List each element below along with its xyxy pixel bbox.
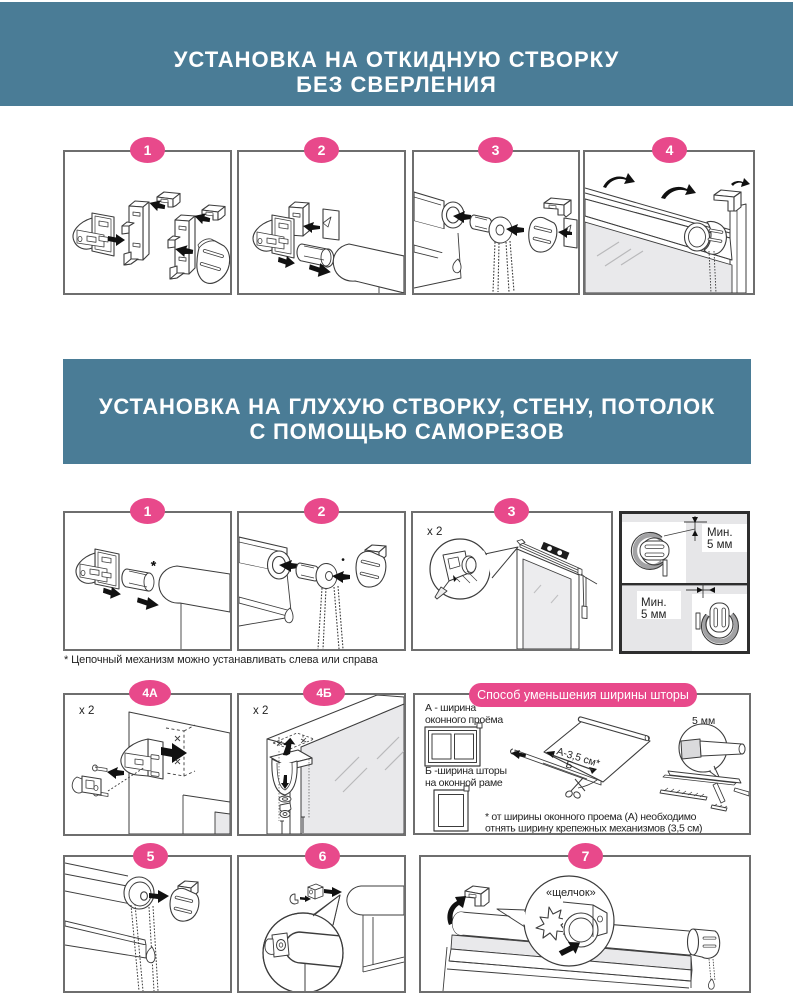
svg-text:Б -ширина шторы: Б -ширина шторы [425, 765, 507, 777]
svg-text:оконного проёма: оконного проёма [425, 714, 503, 726]
svg-text:отнять ширину крепежных механи: отнять ширину крепежных механизмов (3,5 … [485, 823, 702, 834]
svg-text:x 2: x 2 [79, 705, 94, 717]
svg-text:x 2: x 2 [253, 705, 268, 717]
svg-text:x 2: x 2 [427, 526, 442, 538]
svg-text:Мин.: Мин. [641, 597, 667, 609]
svg-text:«щелчок»: «щелчок» [546, 887, 596, 899]
svg-text:* от ширины оконного проема (А: * от ширины оконного проема (А) необходи… [485, 811, 697, 823]
svg-text:5 мм: 5 мм [707, 539, 732, 551]
svg-text:5 мм: 5 мм [641, 609, 666, 621]
svg-text:Мин.: Мин. [707, 527, 733, 539]
svg-text:А - ширина: А - ширина [425, 702, 476, 714]
